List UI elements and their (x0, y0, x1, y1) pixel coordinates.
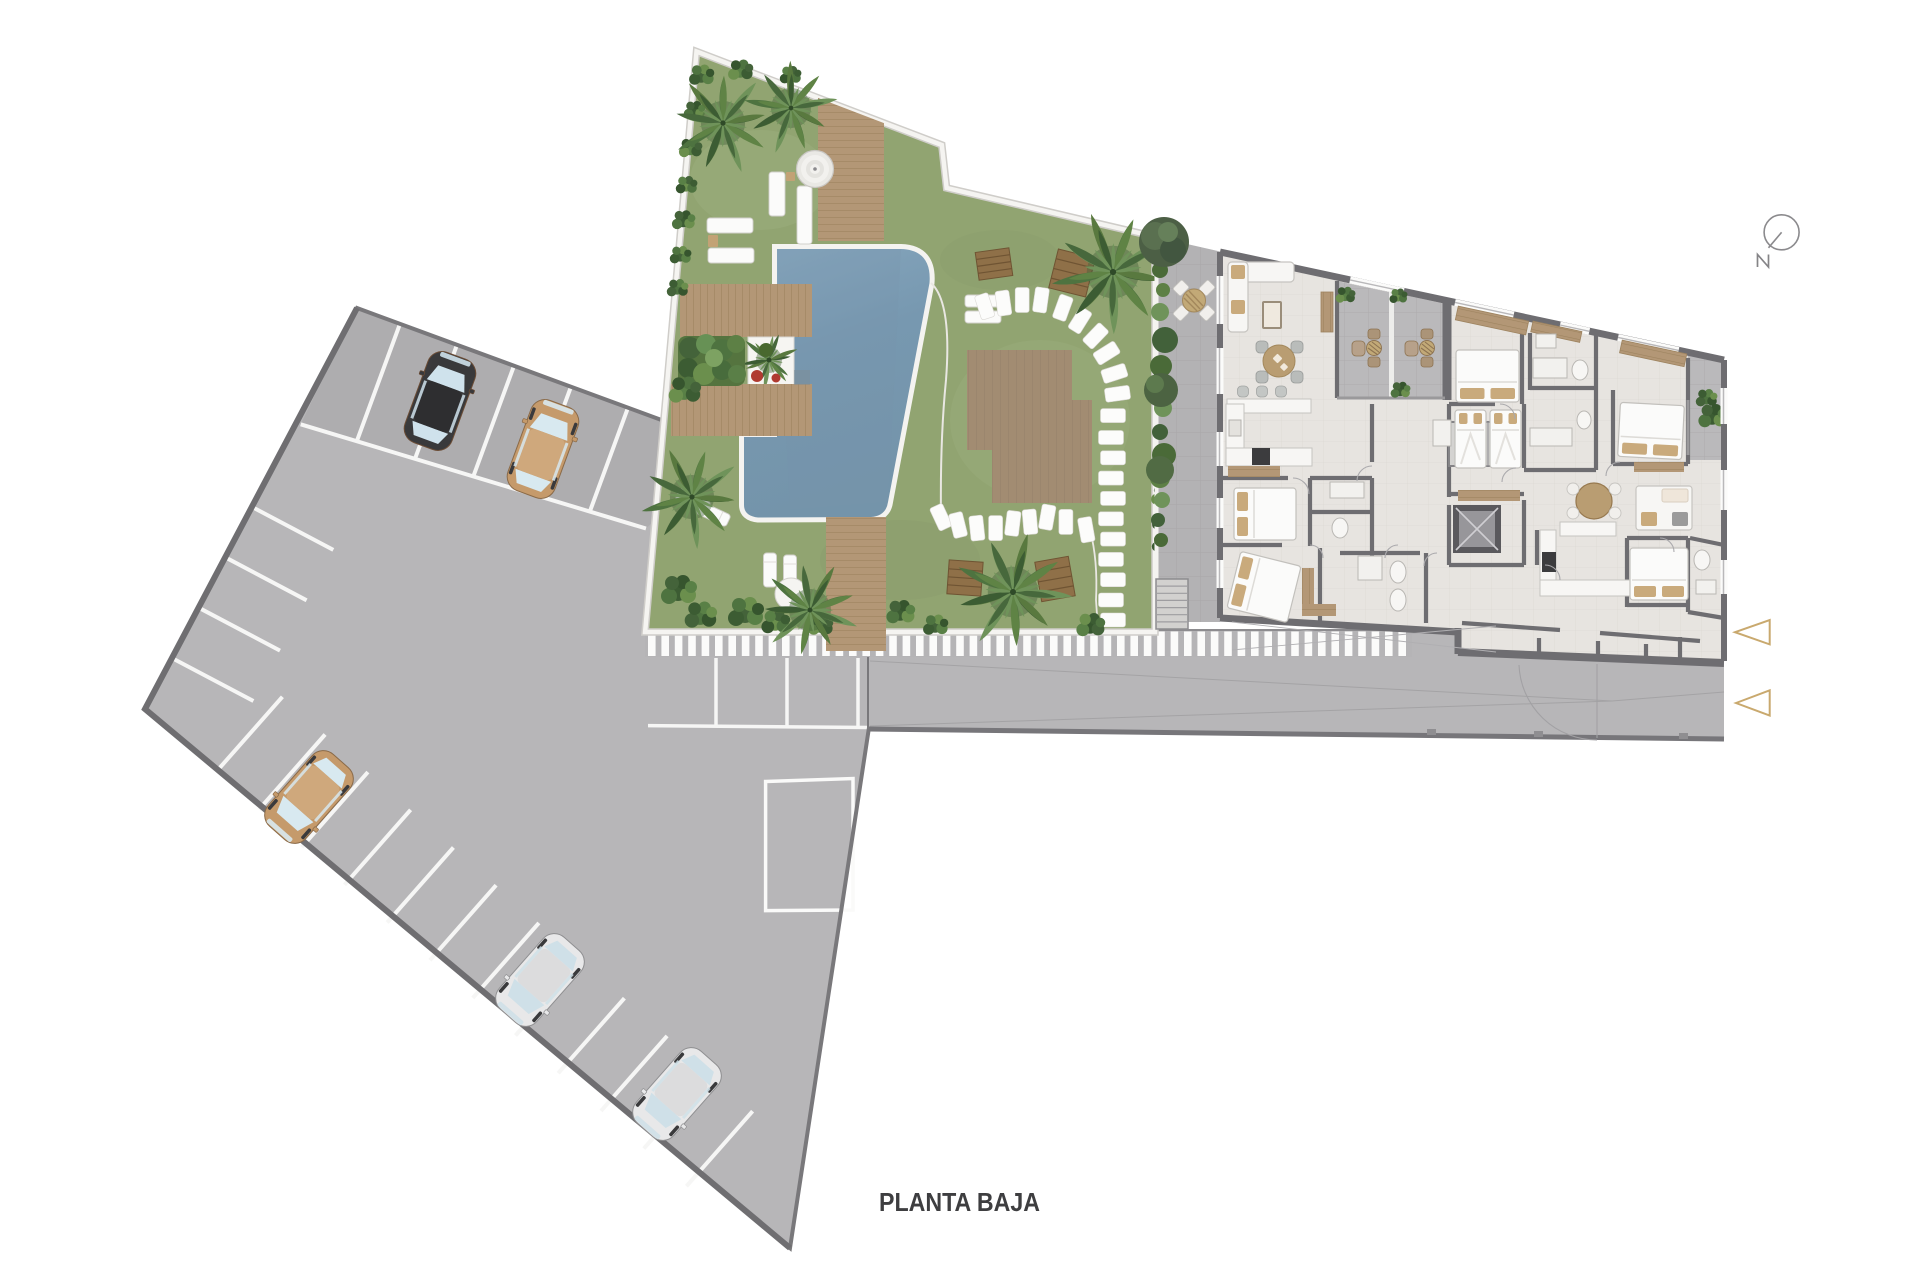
svg-text:PLANTA BAJA: PLANTA BAJA (879, 1187, 1040, 1217)
